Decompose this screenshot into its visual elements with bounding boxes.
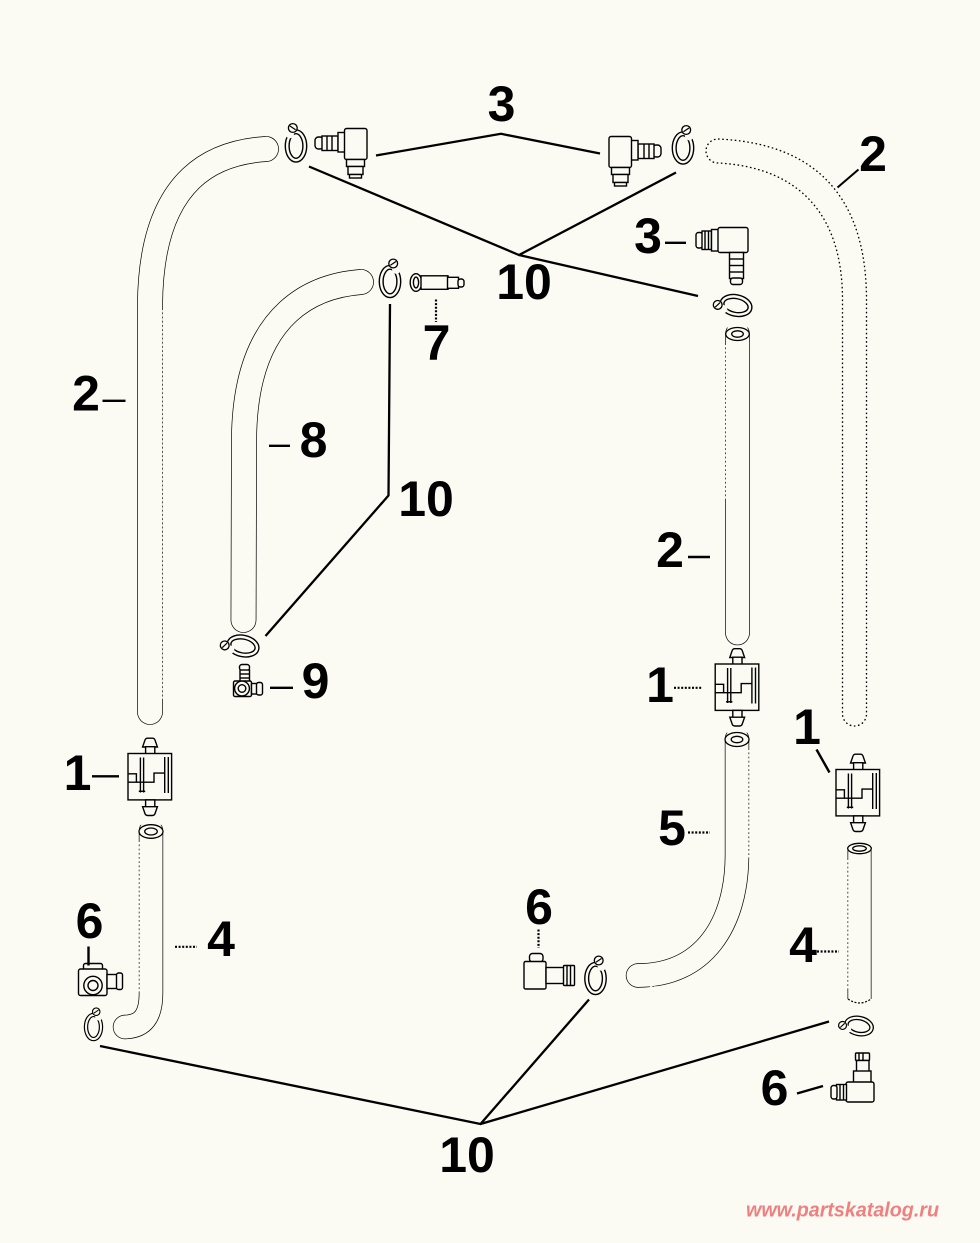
svg-text:6: 6 [761, 1060, 789, 1116]
svg-text:10: 10 [496, 254, 552, 310]
svg-text:6: 6 [76, 893, 104, 949]
svg-text:1: 1 [64, 745, 92, 801]
svg-text:5: 5 [658, 800, 686, 856]
svg-text:4: 4 [207, 911, 235, 967]
svg-text:3: 3 [488, 76, 516, 132]
svg-text:www.partskatalog.ru: www.partskatalog.ru [746, 1199, 939, 1222]
svg-text:10: 10 [439, 1127, 495, 1183]
svg-text:9: 9 [302, 653, 330, 709]
svg-text:1: 1 [646, 657, 674, 713]
svg-text:2: 2 [72, 366, 100, 422]
svg-text:3: 3 [634, 208, 662, 264]
svg-text:7: 7 [423, 315, 451, 371]
svg-text:8: 8 [300, 412, 328, 468]
svg-text:2: 2 [656, 522, 684, 578]
svg-text:6: 6 [525, 879, 553, 935]
svg-text:2: 2 [859, 126, 887, 182]
svg-text:1: 1 [793, 699, 821, 755]
svg-text:10: 10 [398, 471, 454, 527]
svg-text:4: 4 [789, 917, 817, 973]
